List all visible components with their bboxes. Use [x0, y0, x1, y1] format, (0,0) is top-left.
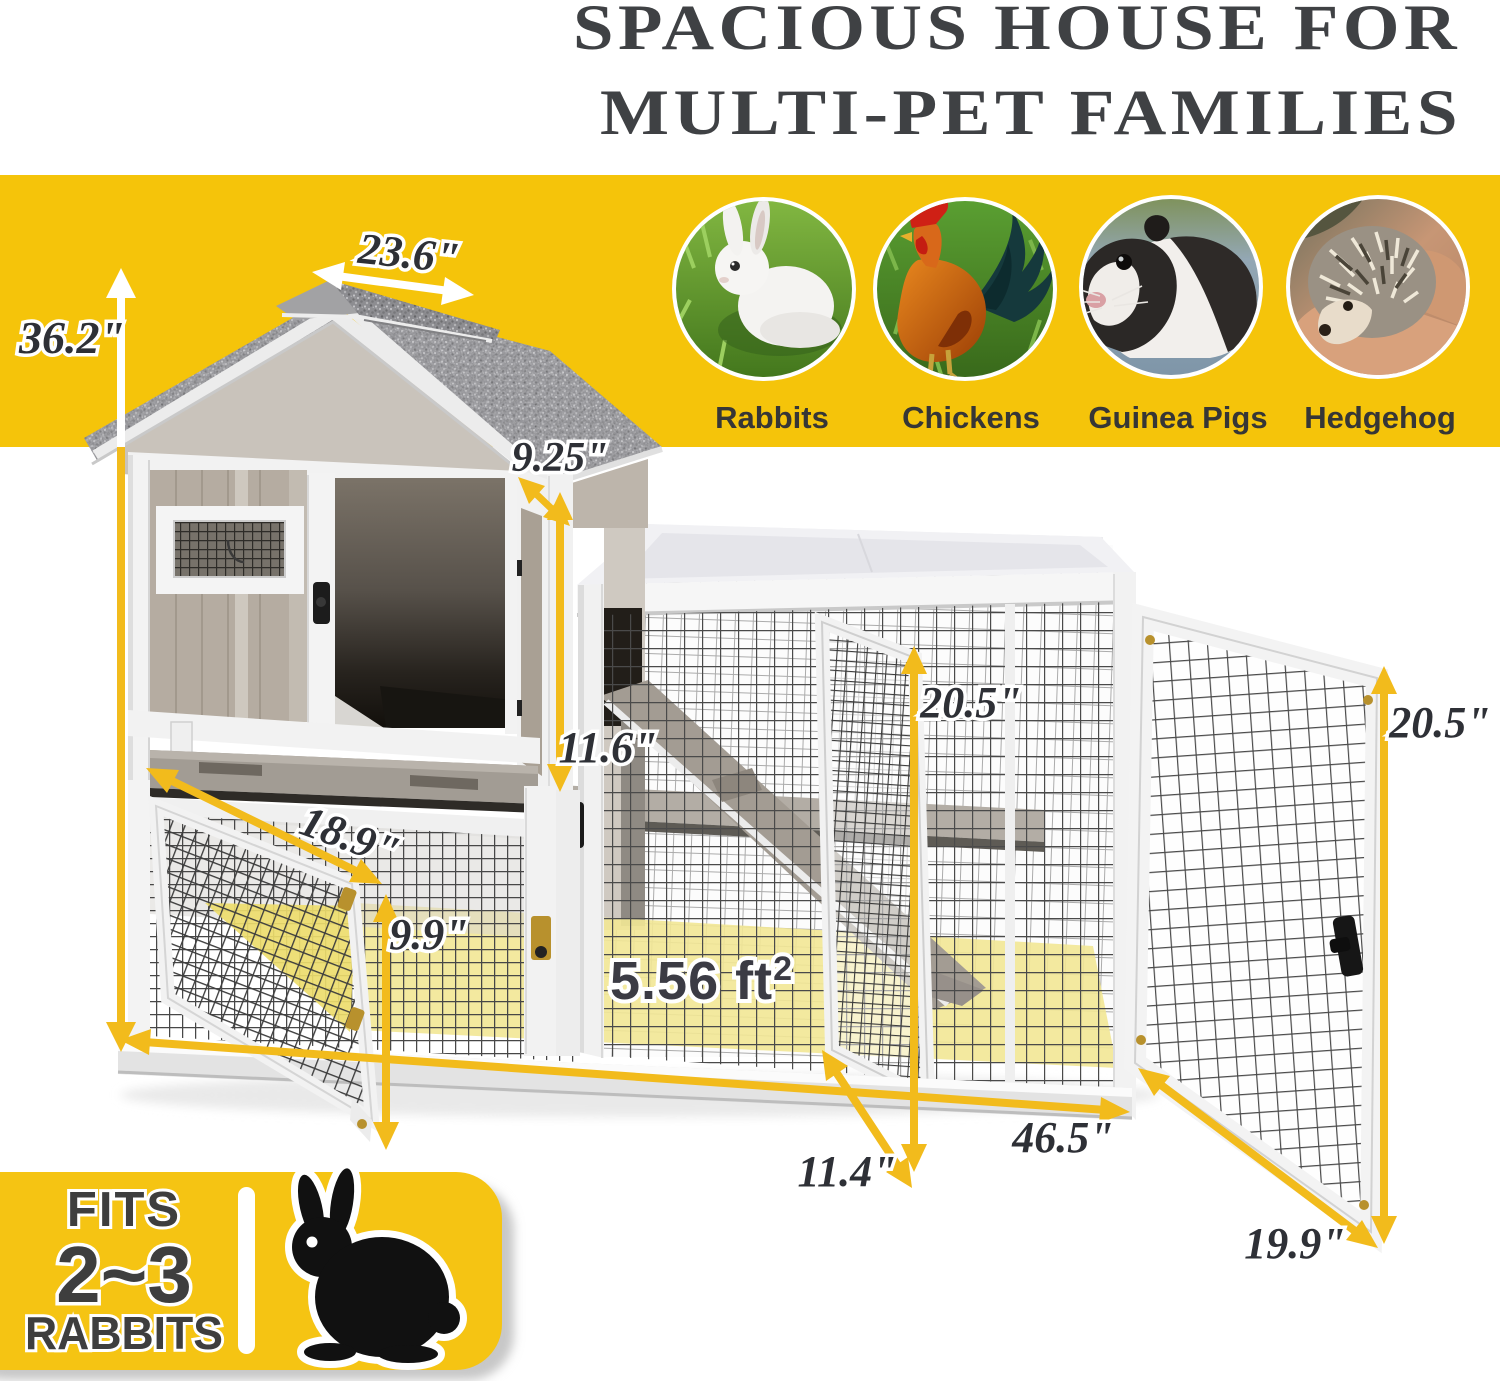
- svg-text:46.5": 46.5": [1011, 1113, 1113, 1162]
- svg-text:2~3: 2~3: [56, 1230, 192, 1319]
- svg-text:Rabbits: Rabbits: [715, 400, 829, 435]
- svg-text:Guinea Pigs: Guinea Pigs: [1088, 400, 1267, 435]
- svg-text:36.2": 36.2": [18, 312, 125, 363]
- svg-text:5.56 ft2: 5.56 ft2: [610, 950, 793, 1011]
- svg-text:9.25": 9.25": [512, 435, 609, 481]
- svg-text:MULTI-PET FAMILIES: MULTI-PET FAMILIES: [600, 77, 1462, 149]
- svg-text:20.5": 20.5": [919, 678, 1021, 727]
- svg-text:20.5": 20.5": [1388, 698, 1490, 747]
- svg-text:Hedgehog: Hedgehog: [1304, 400, 1456, 435]
- svg-text:11.4": 11.4": [798, 1147, 897, 1196]
- svg-text:9.9": 9.9": [389, 910, 468, 959]
- svg-text:19.9": 19.9": [1244, 1219, 1345, 1268]
- svg-text:11.6": 11.6": [559, 723, 658, 772]
- svg-text:Chickens: Chickens: [902, 400, 1040, 435]
- svg-text:FITS: FITS: [67, 1183, 181, 1237]
- svg-text:RABBITS: RABBITS: [25, 1307, 223, 1359]
- svg-text:SPACIOUS HOUSE FOR: SPACIOUS HOUSE FOR: [573, 0, 1461, 64]
